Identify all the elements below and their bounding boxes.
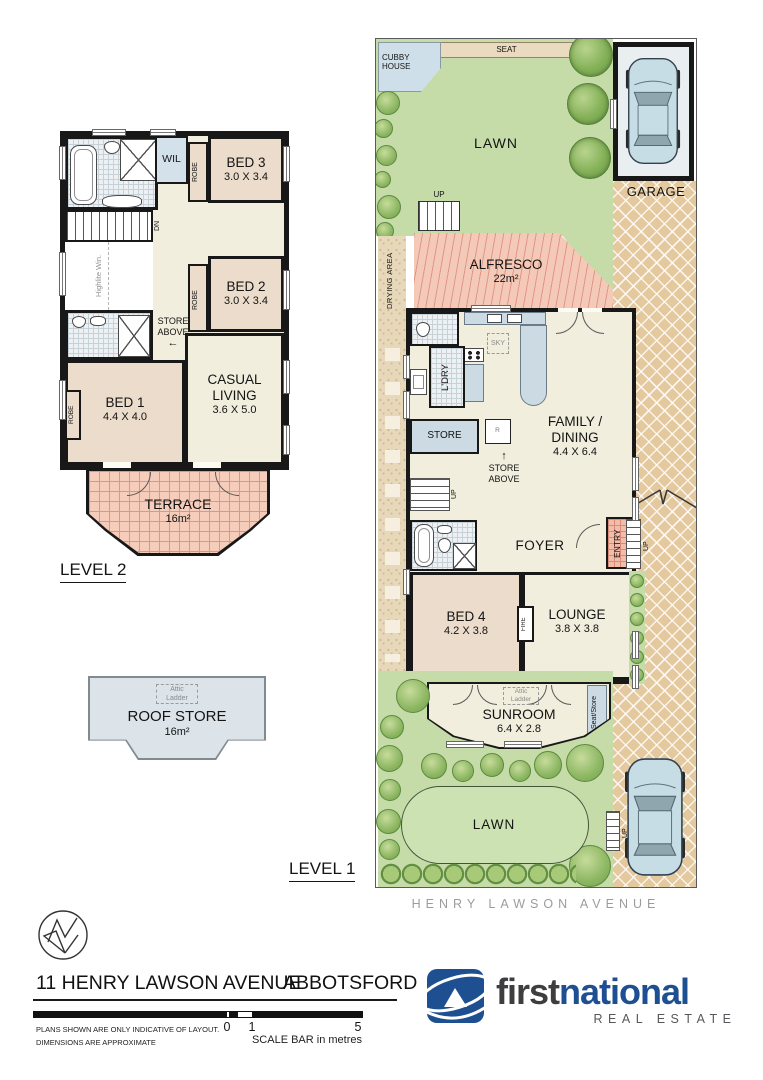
sunroom-name: SUNROOM bbox=[429, 706, 609, 723]
casual-dims: 3.6 X 5.0 bbox=[188, 404, 281, 417]
door-arc bbox=[477, 685, 497, 705]
toilet-icon bbox=[104, 141, 120, 154]
window bbox=[504, 741, 542, 748]
scale-tick-0: 0 bbox=[220, 1020, 234, 1035]
scale-tick-1: 1 bbox=[245, 1020, 259, 1035]
level2-plan: WIL ROBE BED 3 3.0 X 3.4 DN Highlite Win… bbox=[60, 131, 289, 470]
bush-icon bbox=[534, 751, 562, 779]
store-above-line1: STORE bbox=[480, 463, 528, 474]
dn-label: DN bbox=[154, 214, 164, 238]
bush-icon bbox=[376, 809, 401, 834]
casual-line2: LIVING bbox=[188, 388, 281, 404]
kitchen-bench-side bbox=[464, 364, 484, 402]
family-line2: DINING bbox=[515, 430, 635, 446]
roof-store-plan: Attic Ladder ROOF STORE 16m² bbox=[90, 678, 264, 758]
family-line1: FAMILY / bbox=[515, 414, 635, 430]
backyard-lawn-label: LAWN bbox=[456, 135, 536, 152]
basin-icon bbox=[437, 525, 452, 534]
lounge-label: LOUNGE 3.8 X 3.8 bbox=[525, 607, 629, 636]
scale-tick-mark bbox=[227, 1012, 229, 1017]
terrace-name: TERRACE bbox=[89, 496, 267, 513]
disclaimer-line2: DIMENSIONS ARE APPROXIMATE bbox=[36, 1039, 156, 1048]
room-bed4: BED 4 4.2 X 3.8 bbox=[410, 572, 522, 680]
room-store: STORE bbox=[410, 419, 479, 454]
attic-line2: Ladder bbox=[504, 696, 538, 704]
up-label: UP bbox=[426, 190, 452, 199]
attic-ladder-note: Attic Ladder bbox=[503, 687, 539, 705]
lounge-dims: 3.8 X 3.8 bbox=[525, 623, 629, 636]
scale-bar bbox=[33, 1011, 363, 1018]
kitchen-island bbox=[520, 325, 547, 406]
alfresco-label: ALFRESCO 22m² bbox=[446, 257, 566, 286]
bed1-label: BED 1 4.4 X 4.0 bbox=[68, 395, 182, 424]
door-arc bbox=[215, 472, 239, 496]
bed1-dims: 4.4 X 4.0 bbox=[68, 411, 182, 424]
door-arc bbox=[127, 472, 151, 496]
fridge-icon: R bbox=[485, 419, 511, 444]
bathtub-icon bbox=[414, 524, 434, 567]
alfresco-area: 22m² bbox=[446, 273, 566, 286]
bed3-name: BED 3 bbox=[211, 155, 281, 171]
level1-stairs bbox=[410, 478, 450, 511]
bush-icon bbox=[566, 744, 604, 782]
room-bed3: BED 3 3.0 X 3.4 bbox=[208, 136, 284, 203]
bathtub-icon bbox=[70, 145, 97, 205]
up-label: UP bbox=[451, 482, 460, 506]
bed3-dims: 3.0 X 3.4 bbox=[211, 171, 281, 184]
laundry-label: L'DRY bbox=[440, 355, 454, 401]
disclaimer-line1: PLANS SHOWN ARE ONLY INDICATIVE OF LAYOU… bbox=[36, 1026, 219, 1035]
room-bathroom bbox=[410, 520, 477, 571]
shower-icon bbox=[453, 543, 476, 569]
family-dining-label: FAMILY / DINING 4.4 X 6.4 bbox=[515, 414, 635, 459]
fridge-label: R bbox=[486, 427, 509, 435]
room-wc bbox=[410, 312, 459, 346]
bed2-dims: 3.0 X 3.4 bbox=[211, 295, 281, 308]
store-above-line1: STORE bbox=[147, 316, 199, 327]
level2-stairs bbox=[65, 210, 153, 242]
roof-store-label: ROOF STORE 16m² bbox=[90, 708, 264, 739]
stove-icon bbox=[464, 348, 484, 362]
window bbox=[150, 129, 176, 136]
level2-bathroom bbox=[65, 136, 158, 210]
bush-icon bbox=[379, 839, 400, 860]
car-icon bbox=[622, 757, 688, 877]
attic-line1: Attic bbox=[157, 685, 197, 694]
window bbox=[632, 665, 639, 689]
room-lounge: LOUNGE 3.8 X 3.8 bbox=[522, 572, 632, 680]
alfresco-name: ALFRESCO bbox=[446, 257, 566, 273]
garden-steps bbox=[418, 201, 460, 231]
vanity-icon bbox=[102, 195, 142, 208]
level1-house: SKY L'DRY STORE R ↑ STORE ABOVE FAMILY /… bbox=[406, 308, 636, 684]
window bbox=[283, 270, 290, 310]
drying-area-label: DRYING AREA bbox=[386, 242, 399, 320]
tree-icon bbox=[567, 83, 609, 125]
toilet-icon bbox=[72, 316, 86, 328]
toilet-icon bbox=[438, 538, 451, 553]
sink-icon bbox=[507, 314, 522, 323]
bush-icon bbox=[509, 760, 531, 782]
laundry-tub-icon bbox=[410, 369, 427, 395]
address-label: 11 HENRY LAWSON AVENUE bbox=[36, 972, 302, 995]
room-bed1: BED 1 4.4 X 4.0 bbox=[65, 360, 185, 465]
up-label: UP bbox=[643, 534, 653, 558]
window bbox=[632, 457, 639, 491]
window bbox=[59, 380, 66, 420]
door-arc bbox=[556, 312, 578, 334]
room-bed2: BED 2 3.0 X 3.4 bbox=[208, 256, 284, 332]
window bbox=[283, 360, 290, 394]
bed4-label: BED 4 4.2 X 3.8 bbox=[413, 609, 519, 638]
attic-line1: Attic bbox=[504, 688, 538, 696]
brand-word-national: national bbox=[559, 971, 689, 1012]
bush-icon bbox=[376, 91, 400, 115]
window bbox=[283, 146, 290, 182]
garage-label: GARAGE bbox=[616, 184, 696, 199]
room-laundry: L'DRY bbox=[429, 346, 465, 408]
kitchen-bench bbox=[464, 312, 546, 325]
lounge-name: LOUNGE bbox=[525, 607, 629, 623]
void-divider bbox=[108, 242, 109, 310]
bush-icon bbox=[480, 753, 504, 777]
front-door-arc bbox=[576, 524, 600, 548]
room-casual-living: CASUAL LIVING 3.6 X 5.0 bbox=[185, 333, 284, 465]
window bbox=[403, 569, 410, 595]
attic-line2: Ladder bbox=[157, 694, 197, 703]
terrace-area: 16m² bbox=[89, 513, 267, 526]
first-national-logo-icon bbox=[427, 969, 484, 1023]
seat-strip: SEAT bbox=[440, 42, 573, 58]
front-lawn-oval: LAWN bbox=[401, 786, 589, 864]
window bbox=[632, 631, 639, 659]
bush-icon bbox=[630, 574, 644, 588]
entry-label: ENTRY bbox=[612, 524, 626, 564]
street-name-label: HENRY LAWSON AVENUE bbox=[375, 897, 697, 912]
robe-bed3: ROBE bbox=[188, 142, 208, 202]
robe-bed1: ROBE bbox=[65, 390, 81, 440]
shower-icon bbox=[118, 315, 150, 357]
terrace-label: TERRACE 16m² bbox=[89, 496, 267, 525]
sink-icon bbox=[487, 314, 502, 323]
driveway-steps bbox=[606, 811, 620, 851]
basin-icon bbox=[90, 316, 106, 326]
brand-tagline: REAL ESTATE bbox=[590, 1012, 740, 1027]
attic-ladder-note: Attic Ladder bbox=[156, 684, 198, 704]
level2-title: LEVEL 2 bbox=[60, 560, 126, 583]
window bbox=[59, 146, 66, 180]
brand-word-first: first bbox=[496, 971, 559, 1012]
seat-label: SEAT bbox=[441, 45, 572, 54]
highlite-win-label: Highlite Win. bbox=[95, 246, 108, 306]
address-underline bbox=[33, 999, 397, 1001]
bush-icon bbox=[380, 715, 404, 739]
suburb-label: ABBOTSFORD bbox=[283, 972, 417, 995]
bush-icon bbox=[377, 195, 401, 219]
sunroom-label: SUNROOM 6.4 X 2.8 bbox=[429, 706, 609, 735]
door-arc bbox=[582, 312, 604, 334]
bush-icon bbox=[452, 760, 474, 782]
window bbox=[471, 305, 511, 312]
gate-icon bbox=[629, 482, 697, 510]
window bbox=[446, 741, 484, 748]
entry-steps bbox=[626, 519, 641, 569]
foyer-label: FOYER bbox=[505, 538, 575, 554]
scale-tick-5: 5 bbox=[350, 1020, 366, 1035]
bush-icon bbox=[630, 593, 644, 607]
window bbox=[403, 355, 410, 379]
window bbox=[403, 391, 410, 419]
family-dims: 4.4 X 6.4 bbox=[515, 446, 635, 459]
north-arrow-icon bbox=[36, 908, 90, 962]
car-icon bbox=[625, 55, 681, 167]
bush-icon bbox=[421, 753, 447, 779]
robe-label: ROBE bbox=[68, 395, 78, 435]
front-lawn-label: LAWN bbox=[402, 817, 586, 833]
bed3-label: BED 3 3.0 X 3.4 bbox=[211, 155, 281, 184]
door-arc bbox=[453, 685, 473, 705]
casual-living-label: CASUAL LIVING 3.6 X 5.0 bbox=[188, 372, 281, 417]
bush-icon bbox=[376, 745, 403, 772]
drying-area: DRYING AREA bbox=[378, 236, 406, 672]
stair-void: Highlite Win. bbox=[65, 242, 153, 310]
window bbox=[632, 497, 639, 521]
robe-label: ROBE bbox=[192, 148, 204, 196]
level1-title: LEVEL 1 bbox=[289, 859, 355, 882]
sky-label: SKY bbox=[491, 340, 505, 347]
cubby-label: CUBBY HOUSE bbox=[382, 53, 438, 72]
garage-door bbox=[610, 99, 617, 129]
cubby-line1: CUBBY bbox=[382, 53, 438, 62]
fire-label: FIRE bbox=[521, 611, 530, 637]
cubby-line2: HOUSE bbox=[382, 62, 438, 71]
bush-icon bbox=[630, 612, 644, 626]
bed2-label: BED 2 3.0 X 3.4 bbox=[211, 279, 281, 308]
window bbox=[283, 425, 290, 455]
scale-segment bbox=[238, 1012, 252, 1017]
bush-icon bbox=[376, 145, 397, 166]
bush-icon bbox=[396, 679, 430, 713]
scale-caption: SCALE BAR in metres bbox=[240, 1034, 362, 1047]
tree-icon bbox=[569, 137, 611, 179]
level2-ensuite bbox=[65, 310, 153, 360]
window bbox=[92, 129, 126, 136]
stepping-stones bbox=[385, 348, 400, 662]
brand-wordmark: firstnational bbox=[496, 971, 689, 1013]
store-label: STORE bbox=[412, 430, 477, 442]
bed4-name: BED 4 bbox=[413, 609, 519, 625]
floorplan-page: WIL ROBE BED 3 3.0 X 3.4 DN Highlite Win… bbox=[0, 0, 763, 1080]
bush-icon bbox=[379, 779, 401, 801]
door-arc bbox=[551, 685, 571, 705]
bed1-name: BED 1 bbox=[68, 395, 182, 411]
wil-label: WIL bbox=[157, 153, 186, 165]
garage bbox=[613, 42, 694, 181]
window bbox=[59, 252, 66, 296]
roof-store-name: ROOF STORE bbox=[90, 708, 264, 726]
room-wil: WIL bbox=[155, 136, 188, 184]
store-above-line2: ABOVE bbox=[480, 474, 528, 485]
bed2-name: BED 2 bbox=[211, 279, 281, 295]
level1-site: SEAT CUBBY HOUSE LAWN UP DRYING AREA ALF… bbox=[375, 38, 697, 888]
fireplace: FIRE bbox=[517, 606, 534, 642]
roof-store-area: 16m² bbox=[90, 726, 264, 739]
shower-icon bbox=[120, 139, 157, 181]
toilet-icon bbox=[416, 322, 430, 337]
hedge-row bbox=[380, 861, 576, 887]
sunroom-dims: 6.4 X 2.8 bbox=[429, 723, 609, 736]
bed4-dims: 4.2 X 3.8 bbox=[413, 625, 519, 638]
casual-line1: CASUAL bbox=[188, 372, 281, 388]
skylight-note: SKY bbox=[487, 333, 509, 354]
